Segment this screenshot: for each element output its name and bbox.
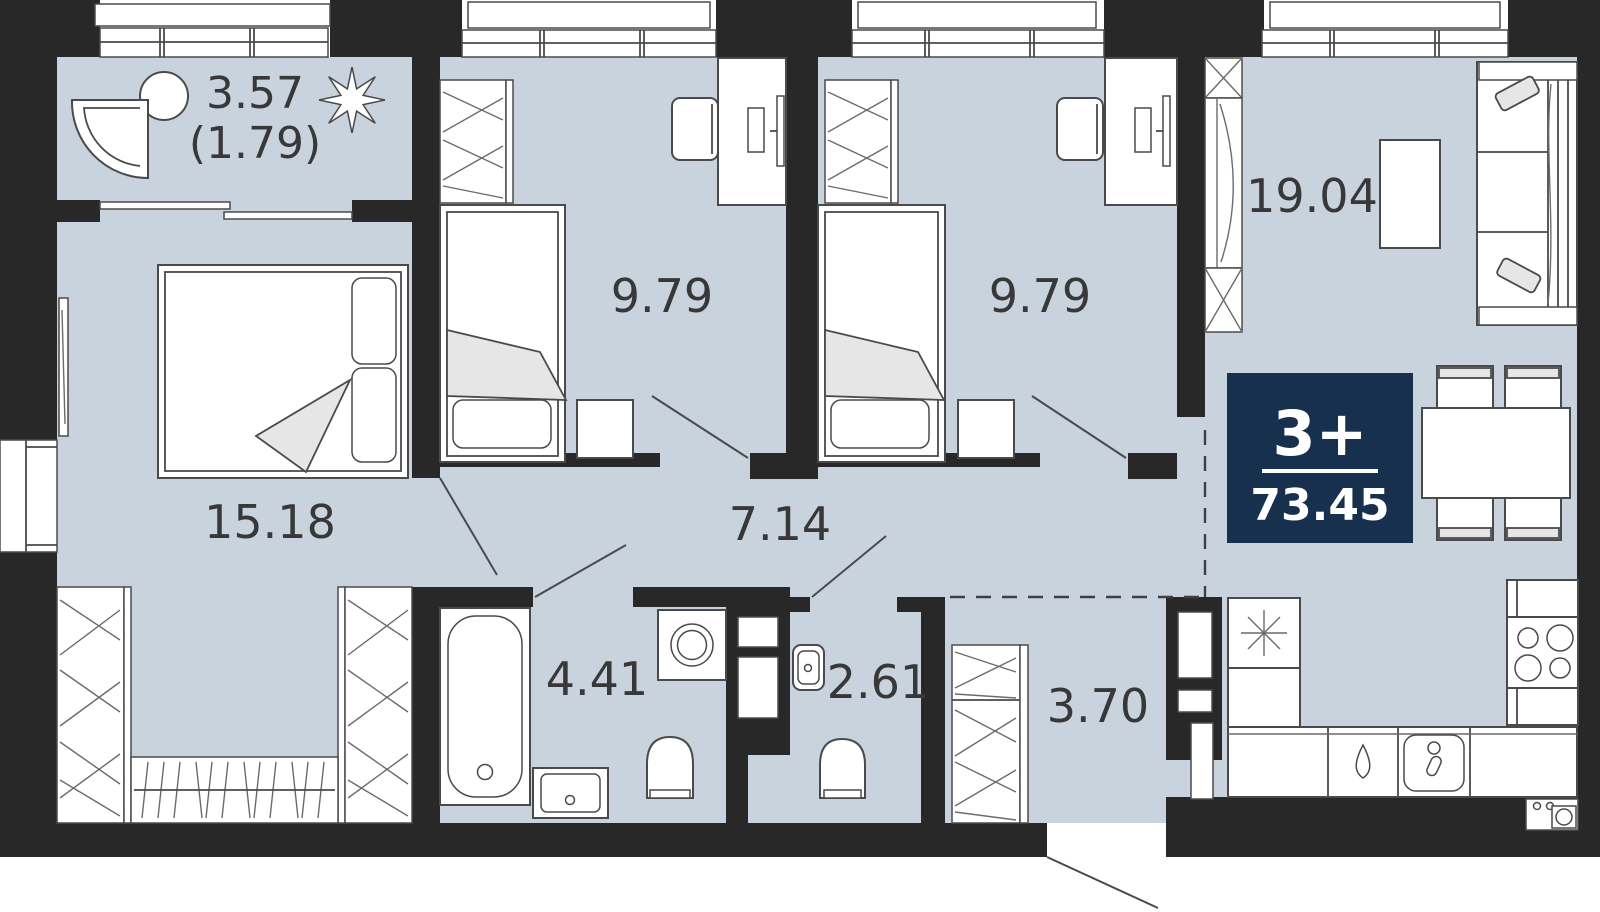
washer-drum-inner <box>678 631 707 660</box>
wall-segment <box>716 0 852 57</box>
wall-segment <box>412 57 440 478</box>
badge-rooms-label: 3+ <box>1272 397 1367 470</box>
balcony-slab <box>95 4 330 26</box>
wall-segment <box>1577 0 1600 857</box>
wardrobe-icon <box>345 587 412 823</box>
balcony-slab <box>858 2 1096 28</box>
wall-segment <box>0 823 1047 857</box>
chair-back <box>1439 368 1491 378</box>
monitor-icon <box>1163 96 1170 166</box>
wardrobe-icon <box>1205 98 1242 268</box>
shaft-opening <box>738 617 778 647</box>
balcony-door <box>100 202 230 209</box>
label-bedroom-2-area: 9.79 <box>989 269 1091 323</box>
wardrobe-side <box>891 80 898 203</box>
wardrobe-icon <box>440 80 506 203</box>
label-hall-area: 3.70 <box>1047 679 1149 733</box>
coffee-table-icon <box>1380 140 1440 248</box>
door-leaf <box>1191 723 1213 799</box>
balcony-slab <box>468 2 710 28</box>
shaft-opening <box>738 657 778 718</box>
pillow <box>352 368 396 462</box>
wall-segment <box>57 200 100 222</box>
label-balcony-area-secondary: (1.79) <box>189 118 321 169</box>
chair-back <box>1507 368 1559 378</box>
label-balcony-area: 3.57 <box>206 68 304 119</box>
utility-circle <box>1556 809 1572 825</box>
balcony-slab <box>1270 2 1500 28</box>
socket-dot <box>1534 803 1541 810</box>
wall-segment <box>786 57 818 467</box>
window-band <box>0 440 57 552</box>
wall-segment <box>352 200 412 222</box>
wall-segment <box>1104 0 1264 57</box>
wardrobe-icon <box>57 587 124 823</box>
wardrobe-side <box>506 80 513 203</box>
floor-plan: 3+ 73.45 3.57 (1.79) 15.18 9.79 9.79 19.… <box>0 0 1600 912</box>
sink-drain <box>805 665 812 672</box>
monitor-icon <box>777 96 784 166</box>
blanket <box>831 400 929 448</box>
toilet-tank <box>824 790 861 798</box>
chair-back <box>1507 528 1559 538</box>
burner <box>1550 658 1570 678</box>
wall-segment <box>921 597 945 823</box>
sofa-armrest <box>1479 307 1577 325</box>
label-bedroom-1-area: 9.79 <box>611 269 713 323</box>
balcony-door <box>224 212 352 219</box>
bathtub-drain <box>478 765 493 780</box>
wall-segment <box>0 0 57 440</box>
burner <box>1547 625 1573 651</box>
wall-segment <box>1177 57 1205 417</box>
dining-table-icon <box>1422 408 1570 498</box>
wardrobe-side <box>338 587 345 823</box>
label-master-bedroom-area: 15.18 <box>204 495 336 549</box>
burner <box>1518 628 1538 648</box>
toilet-icon <box>647 737 693 798</box>
nightstand-icon <box>577 400 633 458</box>
area-badge: 3+ 73.45 <box>1227 373 1413 543</box>
door-swing-entrance <box>1047 857 1158 908</box>
kitchen-counter <box>1228 727 1577 797</box>
wall-segment <box>726 755 748 823</box>
wall-segment <box>330 0 462 57</box>
keyboard <box>1135 108 1151 152</box>
label-kitchen-living-area: 19.04 <box>1246 169 1378 223</box>
wall-segment <box>790 597 810 612</box>
label-wc-area: 2.61 <box>827 655 929 709</box>
wardrobe-side <box>1020 645 1028 823</box>
pillow <box>352 278 396 364</box>
badge-total-area: 73.45 <box>1250 480 1389 531</box>
wardrobe-icon <box>952 645 1020 823</box>
shaft-opening <box>1178 690 1212 712</box>
burner <box>1515 655 1541 681</box>
wall-segment <box>1128 453 1177 479</box>
faucet <box>1428 742 1440 754</box>
wall-segment <box>0 552 57 857</box>
label-hallway-area: 7.14 <box>729 497 831 551</box>
blanket <box>453 400 551 448</box>
chair-back <box>1439 528 1491 538</box>
wall-segment <box>412 587 440 823</box>
wall-segment <box>412 587 533 607</box>
wardrobe-side <box>124 587 131 823</box>
keyboard <box>748 108 764 152</box>
sink-basin <box>541 774 600 812</box>
nightstand-icon <box>958 400 1014 458</box>
fridge-lower <box>1228 668 1300 727</box>
sink-drain <box>566 796 575 805</box>
toilet-tank <box>650 790 690 798</box>
toilet-icon <box>820 739 865 798</box>
plant-icon <box>319 67 385 133</box>
label-bathroom-area: 4.41 <box>546 652 648 706</box>
wardrobe-icon <box>825 80 891 203</box>
shaft-opening <box>1178 612 1212 678</box>
